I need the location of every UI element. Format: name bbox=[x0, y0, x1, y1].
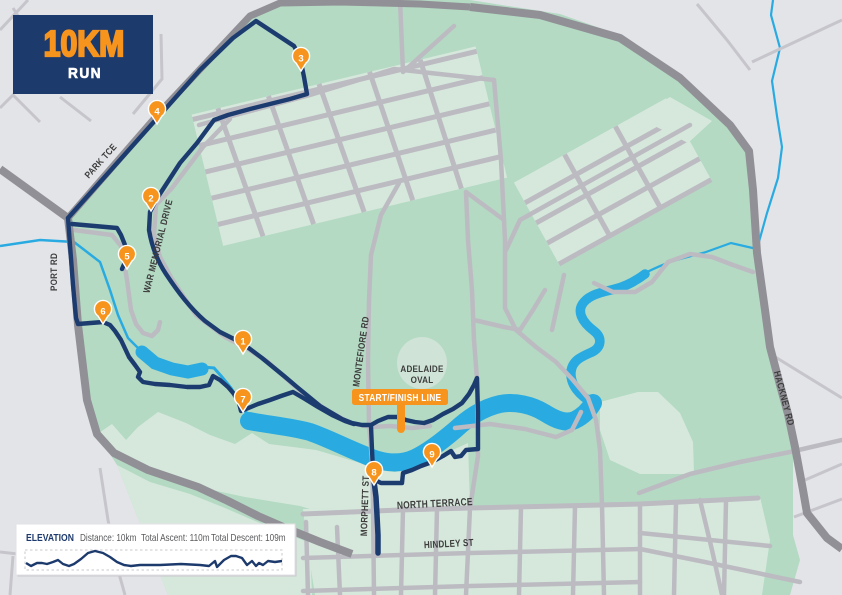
svg-text:2: 2 bbox=[148, 193, 153, 204]
svg-text:ELEVATION: ELEVATION bbox=[26, 532, 74, 544]
svg-text:4: 4 bbox=[154, 106, 160, 117]
svg-text:PORT RD: PORT RD bbox=[48, 253, 59, 291]
svg-text:RUN: RUN bbox=[68, 65, 102, 81]
svg-text:OVAL: OVAL bbox=[411, 374, 434, 385]
svg-text:9: 9 bbox=[429, 449, 434, 460]
svg-text:3: 3 bbox=[298, 53, 303, 64]
svg-text:Distance: 10km: Distance: 10km bbox=[80, 532, 136, 543]
svg-text:10KM: 10KM bbox=[44, 25, 125, 65]
svg-text:Total Ascent: 110m: Total Ascent: 110m bbox=[141, 532, 210, 543]
svg-text:1: 1 bbox=[240, 336, 246, 347]
svg-text:Total Descent: 109m: Total Descent: 109m bbox=[211, 532, 286, 543]
svg-text:MORPHETT ST: MORPHETT ST bbox=[358, 475, 371, 536]
svg-text:ADELAIDE: ADELAIDE bbox=[400, 363, 443, 374]
svg-text:START/FINISH LINE: START/FINISH LINE bbox=[359, 392, 442, 404]
svg-text:7: 7 bbox=[240, 394, 245, 405]
svg-text:5: 5 bbox=[124, 251, 130, 262]
svg-text:6: 6 bbox=[100, 306, 105, 317]
svg-text:8: 8 bbox=[371, 467, 376, 478]
